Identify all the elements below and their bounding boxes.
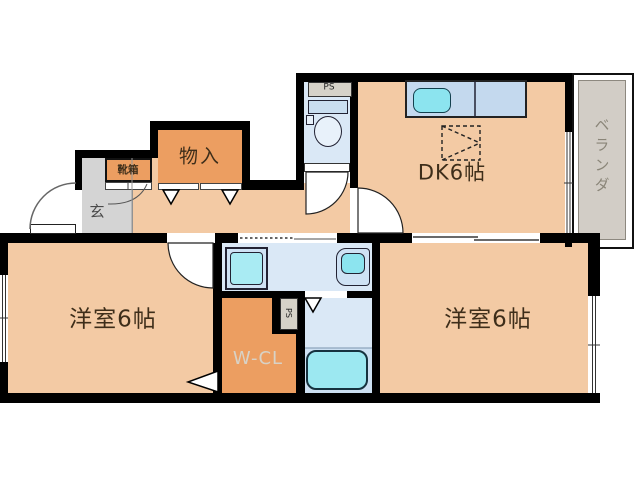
wall-mid-a <box>0 233 167 243</box>
wcl-label: W-CL <box>233 350 283 368</box>
bedroom-left-window <box>0 275 8 362</box>
washing-machine <box>230 252 263 285</box>
wall-storage-top <box>150 121 250 130</box>
wall-bedroom-left-right <box>213 233 222 393</box>
bedroom-left-door-opening <box>167 233 215 243</box>
storage-front-left <box>158 183 199 190</box>
wall-bedroom-right-right <box>588 243 600 296</box>
storage-label: 物入 <box>179 148 221 167</box>
bedroom-right-window <box>588 296 600 393</box>
wall-dk-right-lower <box>565 233 572 247</box>
wall-toilet-left <box>296 73 304 190</box>
washbasin-bowl <box>341 253 365 274</box>
ps-top-label: PS <box>323 84 334 93</box>
toilet-tank <box>308 100 348 114</box>
bathtub <box>306 350 368 390</box>
wall-ps-mid-left <box>272 291 280 334</box>
dk-label: DK6帖 <box>418 163 486 184</box>
shoe-box-label: 靴箱 <box>118 165 139 176</box>
dk-door-opening <box>350 188 358 233</box>
wall-dk-toilet <box>350 82 358 188</box>
veranda-label: ベランダ <box>594 117 609 197</box>
storage-front-right <box>200 183 242 190</box>
wall-shoebox-top <box>75 150 158 158</box>
entrance-door-arc <box>30 183 76 229</box>
toilet-door-leaf <box>304 163 350 172</box>
bedroom-right-label: 洋室6帖 <box>444 309 532 332</box>
wall-wash-bath-a <box>218 291 305 298</box>
wall-notch-bottom <box>242 180 304 190</box>
toilet-flush-box <box>306 115 314 125</box>
wall-bedroom-right-left <box>372 233 380 403</box>
washroom-sliding-door <box>238 233 337 243</box>
toilet-bowl <box>314 116 342 147</box>
bedroom-left-label: 洋室6帖 <box>69 309 157 332</box>
kitchen-sink <box>413 88 451 113</box>
entrance-label: 玄 <box>89 205 104 220</box>
floor-plan-canvas: DK6帖 洋室6帖 洋室6帖 物入 靴箱 玄 W-CL ベランダ PS PS <box>0 0 640 480</box>
wall-dk-right-upper <box>565 73 572 132</box>
entrance-door-leaf <box>30 224 76 234</box>
shoebox-front <box>105 182 152 190</box>
bathroom-door-opening <box>305 291 347 298</box>
wall-storage-right <box>242 130 250 183</box>
dk-bedroom-sliding-door <box>412 233 540 243</box>
ps-mid-label: PS <box>284 308 292 318</box>
wall-left-upper <box>0 238 8 275</box>
entrance-door-opening <box>75 190 82 233</box>
wall-entry-left <box>75 158 82 190</box>
